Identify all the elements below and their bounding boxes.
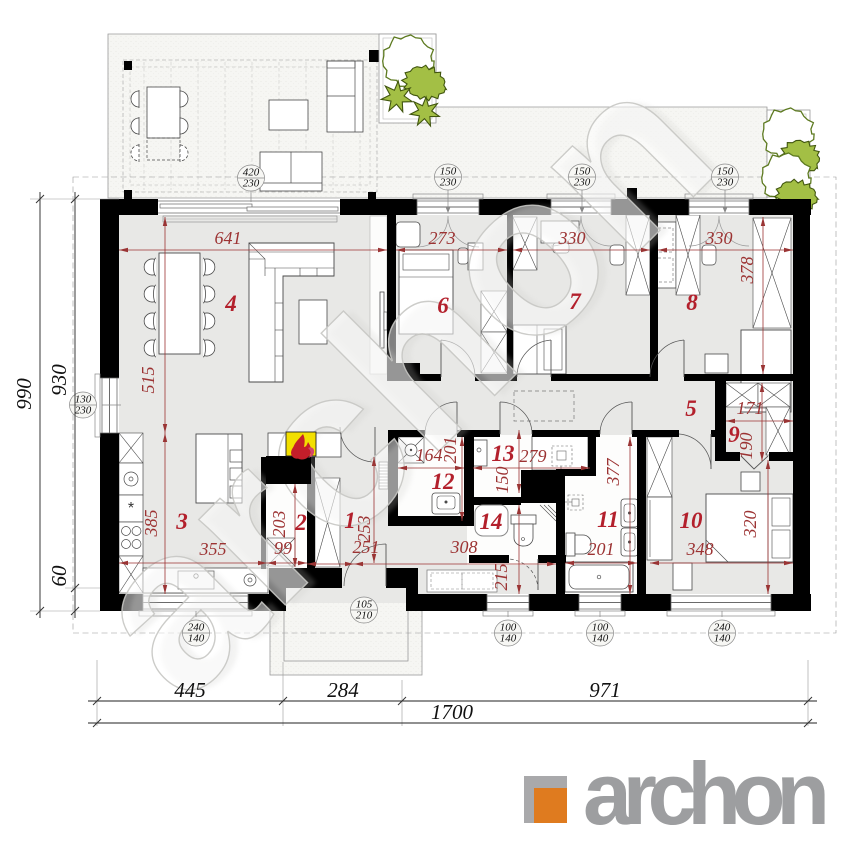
svg-text:140: 140 (188, 633, 205, 645)
svg-text:230: 230 (440, 177, 457, 189)
svg-text:378: 378 (737, 257, 757, 285)
svg-text:330: 330 (705, 228, 733, 248)
svg-text:273: 273 (429, 228, 456, 248)
svg-text:171: 171 (737, 398, 764, 418)
svg-text:3: 3 (175, 509, 188, 534)
svg-text:60: 60 (47, 565, 71, 587)
svg-text:230: 230 (75, 405, 92, 417)
svg-text:1: 1 (344, 508, 356, 533)
svg-text:377: 377 (603, 458, 623, 487)
svg-text:7: 7 (569, 289, 582, 314)
svg-text:1700: 1700 (431, 700, 474, 724)
svg-text:320: 320 (740, 511, 760, 539)
svg-text:641: 641 (215, 228, 242, 248)
svg-text:5: 5 (685, 396, 697, 421)
svg-text:4: 4 (224, 291, 237, 316)
svg-text:6: 6 (437, 293, 449, 318)
svg-text:971: 971 (589, 678, 621, 702)
svg-text:201: 201 (588, 539, 615, 559)
svg-text:140: 140 (500, 633, 517, 645)
svg-text:930: 930 (47, 364, 71, 396)
svg-text:279: 279 (520, 446, 547, 466)
svg-text:385: 385 (141, 510, 161, 538)
svg-text:990: 990 (12, 378, 36, 410)
svg-text:330: 330 (558, 228, 586, 248)
svg-text:230: 230 (243, 178, 260, 190)
svg-text:230: 230 (574, 177, 591, 189)
svg-text:140: 140 (714, 633, 731, 645)
svg-text:445: 445 (174, 678, 206, 702)
svg-text:8: 8 (686, 290, 698, 315)
svg-text:253: 253 (354, 516, 374, 543)
svg-text:12: 12 (432, 469, 455, 494)
svg-text:9: 9 (728, 422, 740, 447)
svg-text:284: 284 (327, 678, 359, 702)
svg-text:230: 230 (717, 177, 734, 189)
svg-text:150: 150 (492, 467, 512, 494)
svg-text:201: 201 (440, 437, 460, 464)
svg-text:348: 348 (686, 539, 714, 559)
svg-text:355: 355 (199, 539, 227, 559)
svg-text:215: 215 (491, 564, 511, 591)
svg-text:210: 210 (356, 610, 373, 622)
svg-text:164: 164 (416, 445, 443, 465)
svg-text:99: 99 (274, 538, 292, 558)
svg-text:archon: archon (583, 744, 828, 843)
svg-text:515: 515 (138, 367, 158, 394)
svg-text:14: 14 (480, 509, 503, 534)
svg-text:308: 308 (450, 537, 478, 557)
svg-text:140: 140 (592, 633, 609, 645)
svg-text:13: 13 (492, 441, 515, 466)
svg-text:11: 11 (597, 507, 619, 532)
svg-text:10: 10 (680, 508, 704, 533)
svg-text:2: 2 (294, 510, 307, 535)
svg-text:203: 203 (269, 511, 289, 538)
